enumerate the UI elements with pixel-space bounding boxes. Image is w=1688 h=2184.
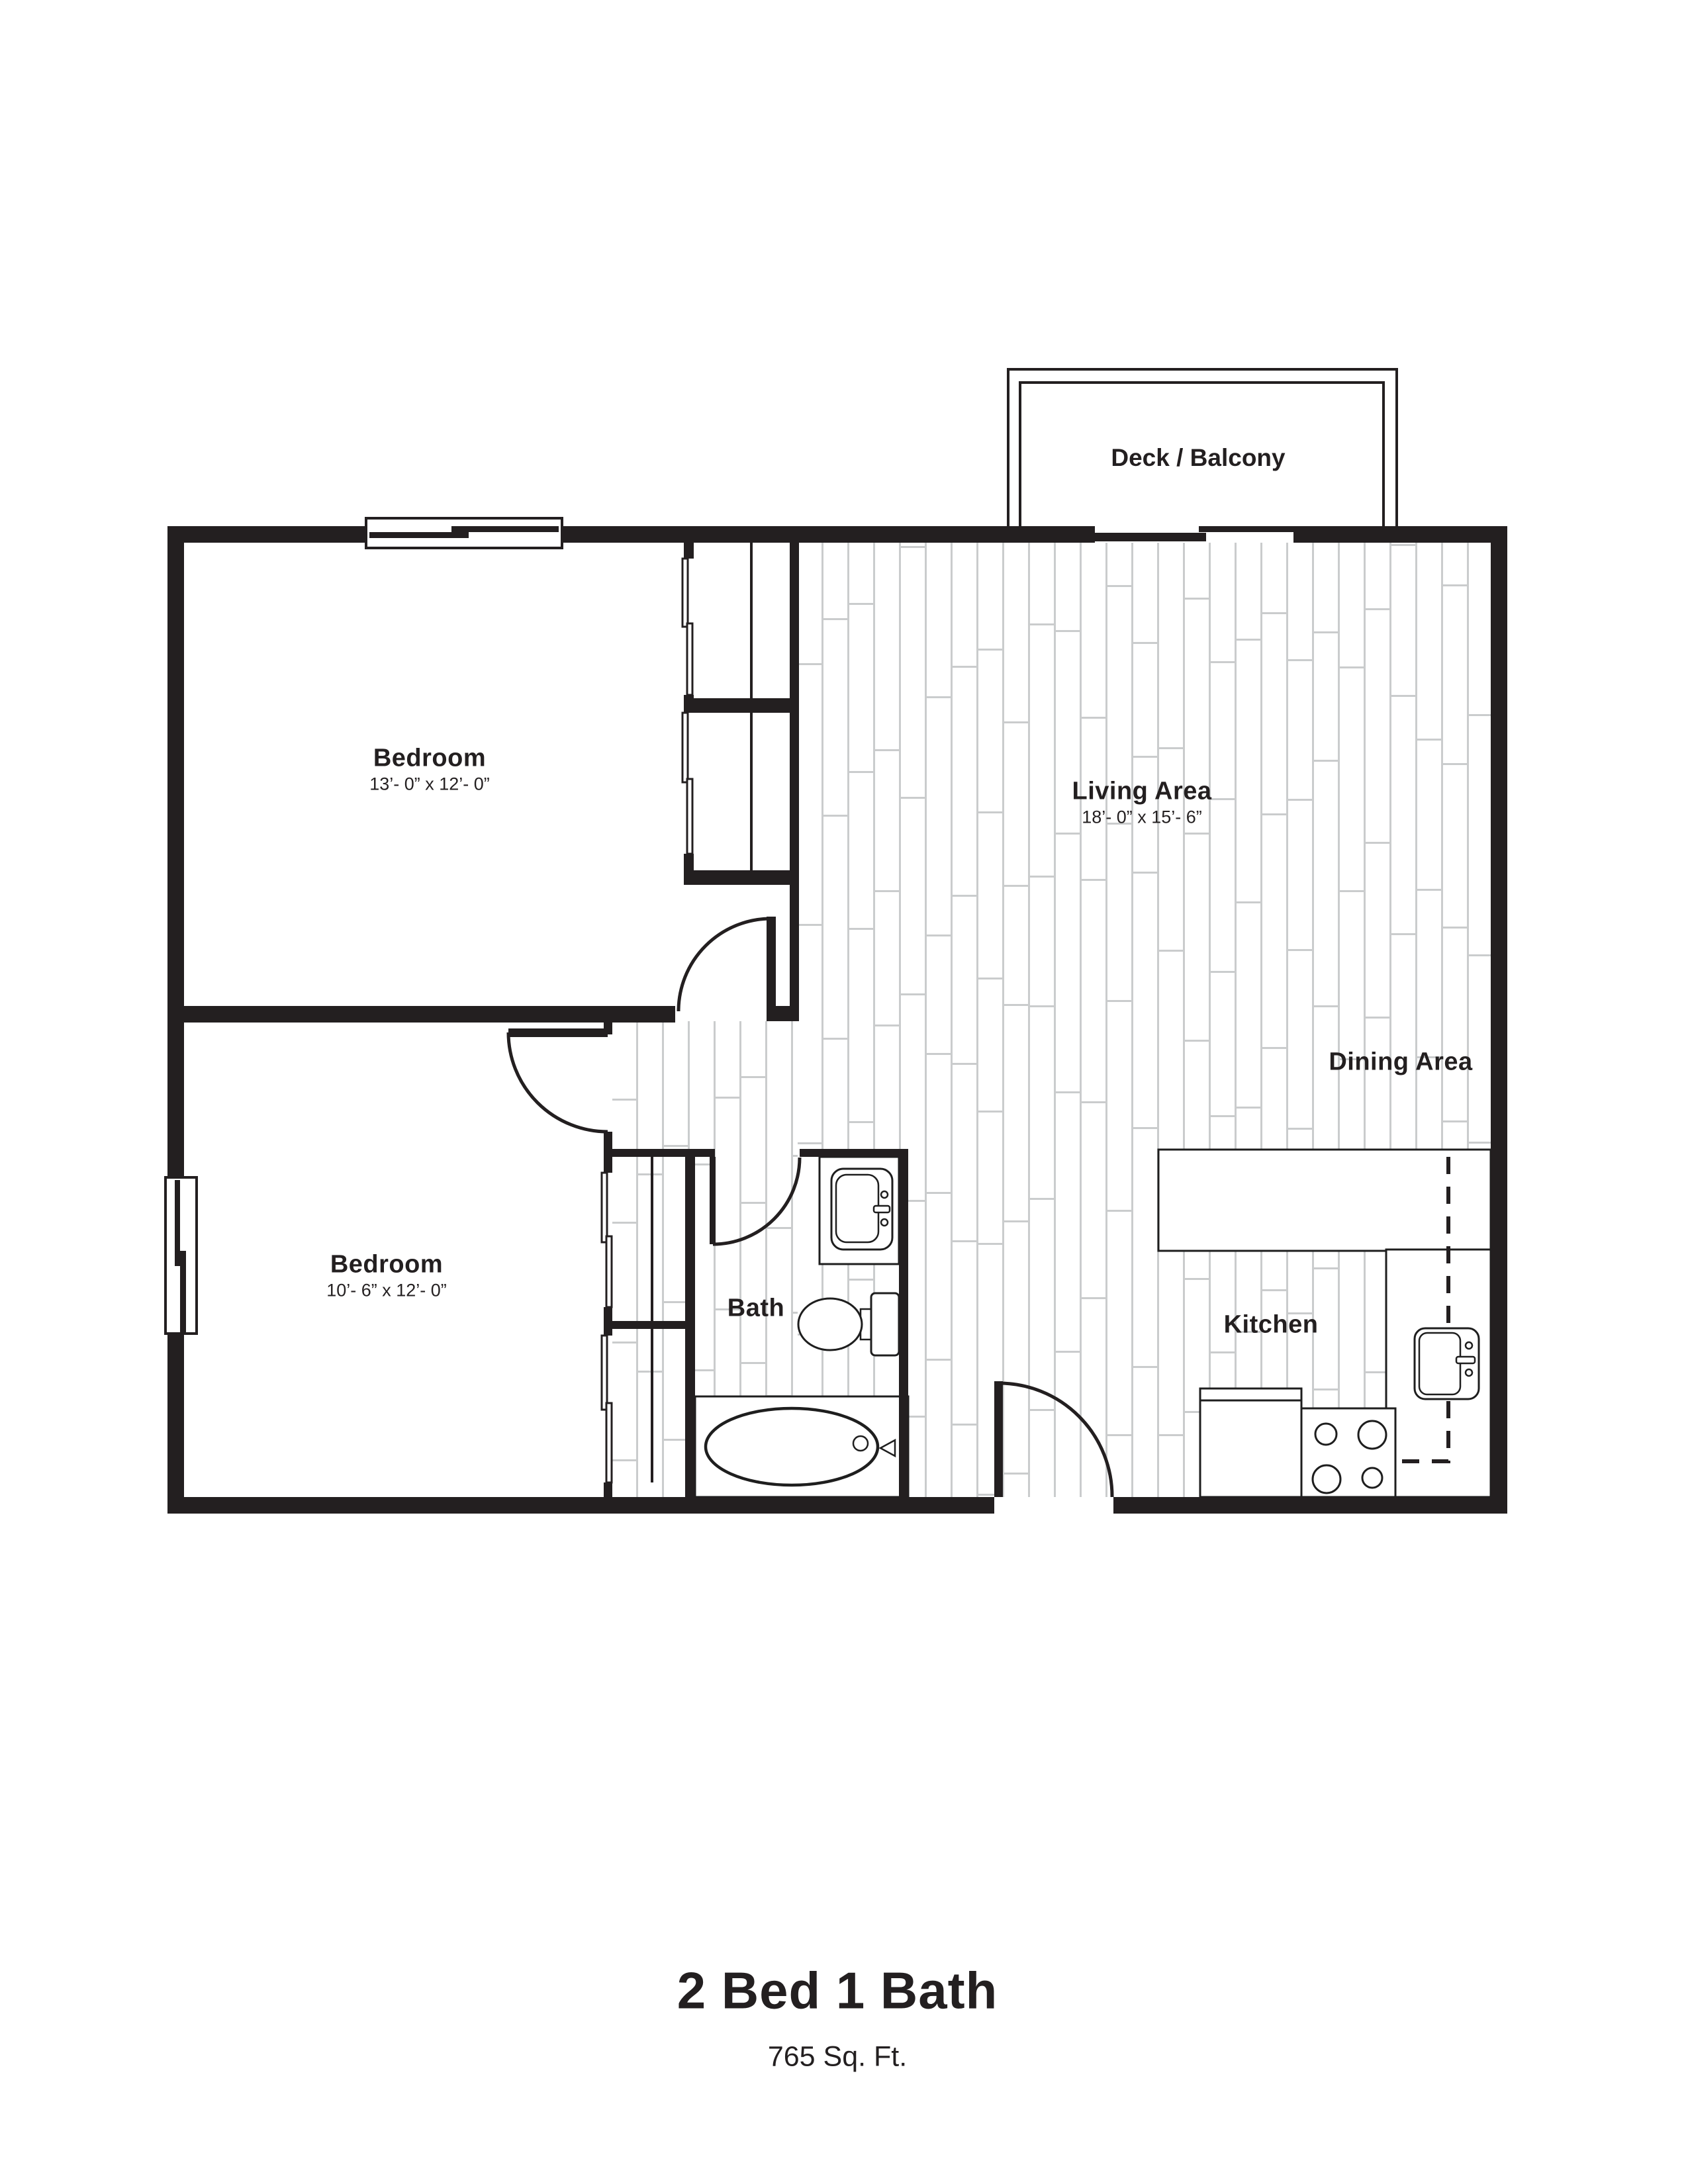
plan-title: 2 Bed 1 Bath (677, 1961, 998, 2021)
bedroom2-door-icon (508, 1028, 608, 1037)
bedroom1-window-icon (366, 518, 562, 548)
fixtures (695, 1150, 1491, 1497)
bedroom1-label: Bedroom (373, 745, 486, 773)
bedroom1-door-icon (767, 917, 776, 1009)
stove-icon (1301, 1408, 1395, 1497)
living-area-dimensions: 18’- 0” x 15’- 6” (1082, 807, 1202, 828)
dining-area-label: Dining Area (1329, 1048, 1472, 1077)
living-area-label: Living Area (1072, 778, 1211, 806)
floorplan-page: Deck / Balcony Bedroom 13’- 0” x 12’- 0”… (0, 0, 1688, 2184)
kitchen-sink-icon (1415, 1328, 1479, 1399)
bedroom2-label: Bedroom (330, 1251, 443, 1279)
balcony-sliding-door-icon (1095, 526, 1293, 541)
floorplan-drawing (0, 0, 1688, 2184)
walls (167, 526, 1507, 1514)
bath-label: Bath (727, 1295, 784, 1323)
bedroom1-dimensions: 13’- 0” x 12’- 0” (369, 774, 490, 795)
bedroom2-window-icon (165, 1177, 197, 1334)
refrigerator-icon (1200, 1388, 1301, 1497)
toilet-icon (798, 1293, 899, 1355)
kitchen-label: Kitchen (1224, 1311, 1319, 1340)
bedroom2-dimensions: 10’- 6” x 12’- 0” (326, 1281, 447, 1301)
bath-door-icon (710, 1157, 716, 1244)
entry-door-icon (994, 1381, 1003, 1497)
deck-balcony-label: Deck / Balcony (1111, 444, 1285, 472)
kitchen-counter (1158, 1150, 1491, 1251)
plan-square-footage: 765 Sq. Ft. (768, 2041, 907, 2073)
bath-sink-icon (831, 1169, 892, 1250)
openings (165, 518, 1293, 1482)
